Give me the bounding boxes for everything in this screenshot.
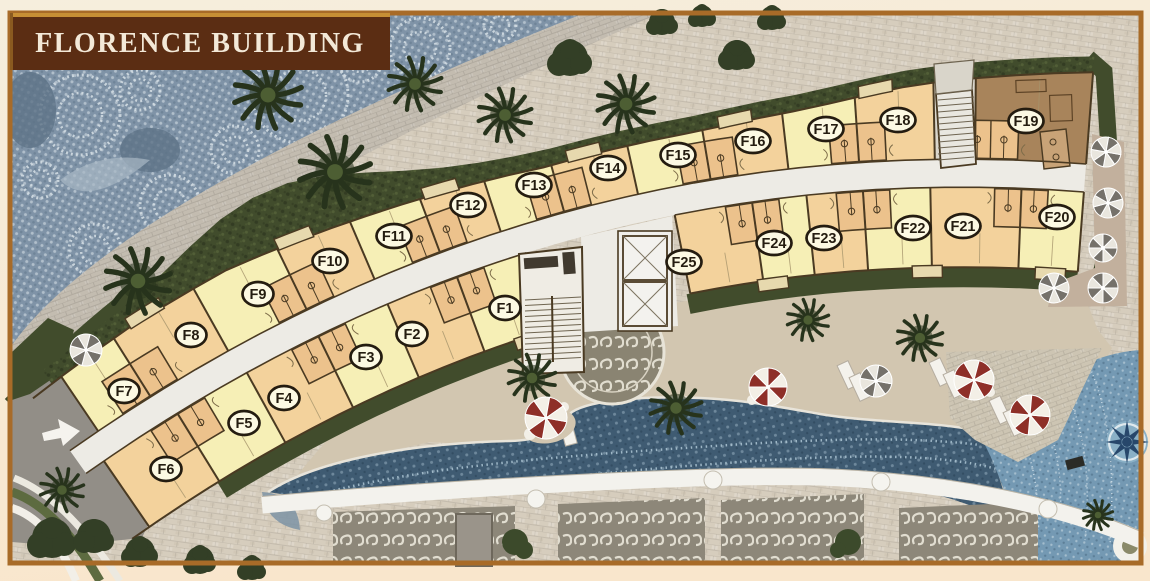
svg-text:F8: F8 <box>183 328 200 344</box>
svg-text:F7: F7 <box>116 384 133 400</box>
svg-text:FLORENCE BUILDING: FLORENCE BUILDING <box>35 28 365 59</box>
svg-text:F6: F6 <box>158 462 175 478</box>
svg-text:F18: F18 <box>886 113 911 129</box>
svg-text:F3: F3 <box>358 350 375 366</box>
svg-text:F9: F9 <box>250 287 267 303</box>
svg-text:F2: F2 <box>404 327 421 343</box>
svg-text:F5: F5 <box>236 416 253 432</box>
svg-text:F4: F4 <box>276 391 293 407</box>
svg-text:F13: F13 <box>522 178 547 194</box>
svg-text:F24: F24 <box>762 236 787 252</box>
svg-text:F14: F14 <box>596 161 621 177</box>
svg-text:F25: F25 <box>672 255 697 271</box>
svg-text:F22: F22 <box>901 221 926 237</box>
svg-text:F20: F20 <box>1045 210 1070 226</box>
svg-text:F21: F21 <box>951 219 976 235</box>
svg-text:F12: F12 <box>456 198 481 214</box>
svg-text:F15: F15 <box>666 148 691 164</box>
svg-text:F10: F10 <box>318 254 343 270</box>
svg-text:F16: F16 <box>741 134 766 150</box>
svg-text:F1: F1 <box>497 301 514 317</box>
svg-text:F17: F17 <box>814 122 839 138</box>
svg-text:F19: F19 <box>1014 114 1039 130</box>
svg-text:F23: F23 <box>812 231 837 247</box>
svg-text:F11: F11 <box>382 229 406 245</box>
